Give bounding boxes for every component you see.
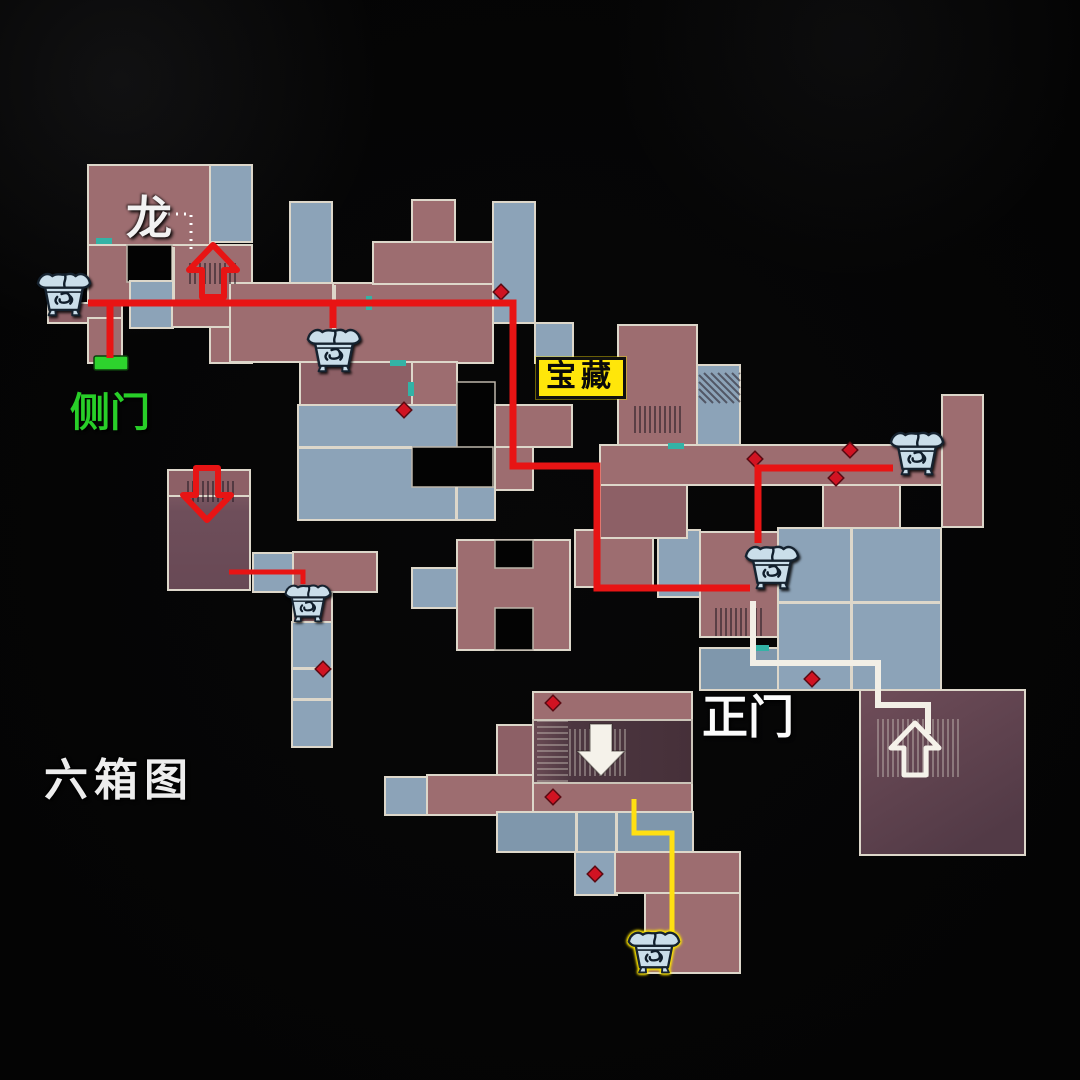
map-room xyxy=(495,540,533,568)
treasure-callout: 宝藏 xyxy=(536,357,626,399)
map-room xyxy=(210,165,252,242)
map-room xyxy=(290,202,332,283)
wall-segment xyxy=(292,698,332,701)
game-map-screenshot: 龙 侧门 宝藏 正门 六箱图 xyxy=(0,0,1080,1080)
map-room xyxy=(495,608,533,650)
map-room xyxy=(412,447,493,487)
map-room xyxy=(412,362,457,407)
teal-door-marker xyxy=(390,360,406,366)
map-room xyxy=(942,395,983,527)
map-room xyxy=(385,777,427,815)
teal-door-marker xyxy=(408,382,414,396)
teal-door-marker xyxy=(96,238,112,244)
map-room xyxy=(412,568,457,608)
map-room xyxy=(700,648,778,690)
map-room xyxy=(495,405,572,447)
wall-segment xyxy=(850,604,853,690)
map-layer xyxy=(0,0,1080,1080)
dragon-label: 龙 xyxy=(126,182,172,248)
map-room xyxy=(615,852,740,893)
map-room xyxy=(600,485,687,538)
map-room xyxy=(300,362,412,407)
teal-door-marker xyxy=(668,443,684,449)
map-room xyxy=(412,200,455,243)
wall-segment xyxy=(298,446,412,449)
map-room xyxy=(373,242,493,284)
map-room xyxy=(333,283,493,363)
map-room xyxy=(292,622,332,747)
map-room xyxy=(823,485,900,528)
side-door-label: 侧门 xyxy=(70,380,150,438)
wall-segment xyxy=(778,601,941,604)
wall-segment xyxy=(615,813,618,851)
wall-segment xyxy=(455,487,458,520)
map-title: 六箱图 xyxy=(44,744,194,808)
main-gate-label: 正门 xyxy=(702,694,750,741)
map-room xyxy=(127,245,172,282)
wall-segment xyxy=(172,247,175,303)
map-canvas xyxy=(0,0,1080,1080)
side-door-marker xyxy=(94,356,128,370)
map-room xyxy=(427,775,533,815)
wall-segment xyxy=(850,528,853,601)
map-room xyxy=(497,725,533,775)
map-room xyxy=(618,325,697,445)
wall-segment xyxy=(575,813,578,851)
